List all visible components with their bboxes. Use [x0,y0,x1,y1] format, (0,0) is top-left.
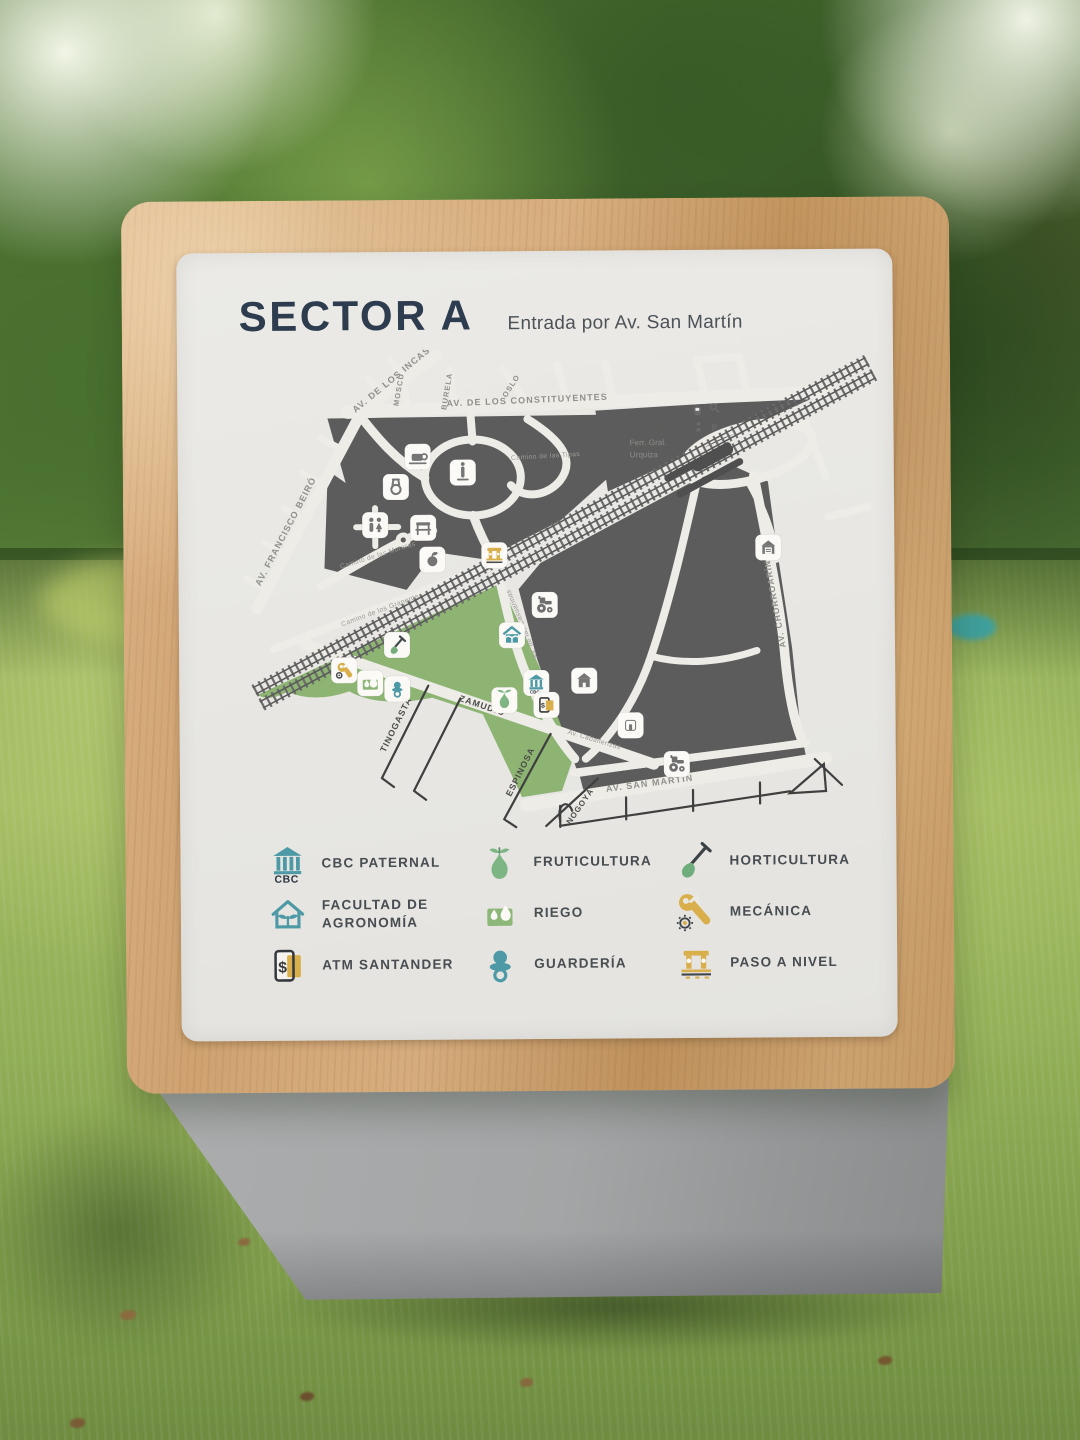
station-operator-line2: Urquiza [630,450,659,459]
sector-map: AV. DE LOS CONSTITUYENTES AV. DE LOS INC… [227,347,890,832]
agronomy-faculty-icon [499,622,525,648]
legend-item: PASO A NIVEL [675,936,871,988]
atm-card-icon: $ [267,944,309,986]
legend-item: FACULTAD DE AGRONOMÍA [267,887,479,939]
teal-object [948,614,996,640]
legend-label: ATM SANTANDER [322,955,453,973]
legend-label: FRUTICULTURA [533,852,652,870]
cafe-icon [405,444,431,470]
legend-item: FRUTICULTURA [478,835,674,887]
garage-icon [755,534,781,560]
fruit-icon [419,547,445,573]
legend-label: RIEGO [534,903,584,921]
sector-title: SECTOR A [239,291,474,341]
cbc-building-icon: CBC [266,842,308,884]
level-crossing-icon [481,542,507,568]
pear-icon [491,687,517,713]
legend-item: HORTICULTURA [674,834,870,886]
legend-label: GUARDERÍA [534,954,627,972]
wrench-gear-icon [331,657,357,683]
wrench-gear-icon [675,890,717,932]
pear-icon [478,841,520,883]
sector-subtitle: Entrada por Av. San Martín [507,312,742,336]
sign-panel: SECTOR A Entrada por Av. San Martín [176,249,897,1042]
legend-label: PASO A NIVEL [730,953,838,971]
svg-text:$: $ [278,959,287,976]
svg-text:$: $ [541,703,545,710]
level-crossing-icon [675,941,717,983]
wooden-sign-board: SECTOR A Entrada por Av. San Martín [121,196,955,1094]
monument-icon [450,459,476,485]
legend-label: HORTICULTURA [729,851,850,869]
irrigation-drops-icon [479,892,521,934]
station-name-line1: ESTACIÓN [629,409,689,421]
shovel-icon [674,839,716,881]
medal-icon [383,474,409,500]
legend-item: RIEGO [479,886,675,938]
small-building-icon [617,712,643,738]
legend-item: GUARDERÍA [479,937,675,989]
restrooms-icon [362,512,388,538]
legend-item: $ ATM SANTANDER [267,938,479,990]
shovel-icon [384,632,410,658]
station-operator-line1: Ferr. Gral. [630,438,667,447]
legend-label: CBC PATERNAL [321,853,440,871]
atm-icon: $ [533,692,559,718]
train-icon [694,406,701,415]
street-label-beiro: AV. FRANCISCO BEIRÓ [252,475,318,588]
building-icon [571,668,597,694]
agronomy-faculty-icon [267,893,309,935]
legend-column-3: HORTICULTURA [674,834,871,988]
legend-column-2: FRUTICULTURA RIEGO [478,835,675,989]
legend-item: MECÁNICA [675,885,871,937]
map-legend: CBC CBC PATERNAL FACULTAD DE AGRONOMÍA [266,834,871,991]
legend-column-1: CBC CBC PATERNAL FACULTAD DE AGRONOMÍA [266,836,479,990]
svg-text:CBC: CBC [274,873,298,884]
legend-label: MECÁNICA [730,902,812,920]
pacifier-icon [479,943,521,985]
legend-item: CBC CBC PATERNAL [266,836,478,888]
tractor-icon [532,592,558,618]
legend-label: FACULTAD DE AGRONOMÍA [322,895,472,931]
kiosk-icon [410,515,436,541]
pacifier-icon [384,676,410,702]
tractor-icon [664,751,690,777]
parking-icon: P [711,423,717,433]
station-name-line2: ARATA [629,423,668,434]
park-sign-photo: SECTOR A Entrada por Av. San Martín [0,0,1080,1440]
irrigation-icon [357,670,383,696]
sign-header: SECTOR A Entrada por Av. San Martín [239,290,743,342]
